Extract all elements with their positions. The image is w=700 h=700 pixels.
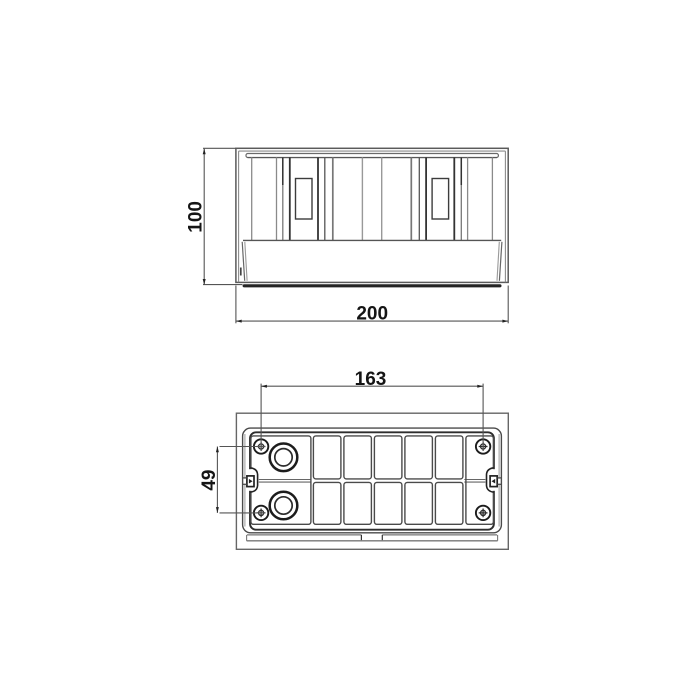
svg-text:163: 163 xyxy=(355,369,387,390)
svg-text:49: 49 xyxy=(199,470,220,491)
svg-text:200: 200 xyxy=(356,304,388,325)
svg-text:100: 100 xyxy=(186,201,207,233)
